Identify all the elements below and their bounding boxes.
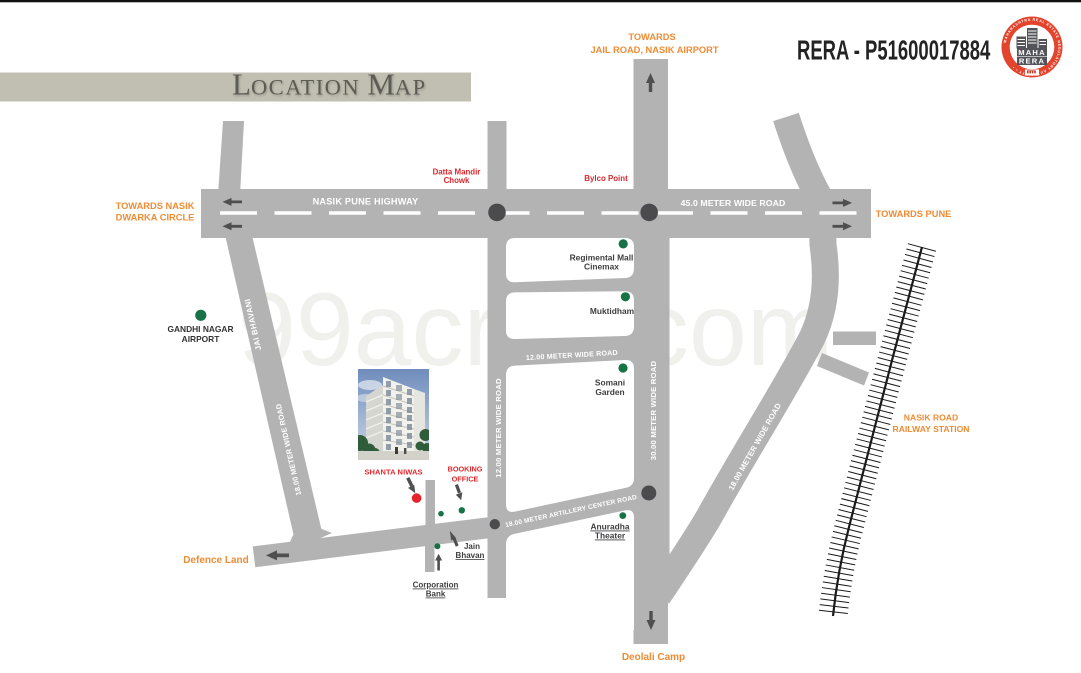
svg-text:JAIL ROAD, NASIK AIRPORT: JAIL ROAD, NASIK AIRPORT	[590, 45, 718, 55]
svg-text:RAILWAY STATION: RAILWAY STATION	[892, 424, 969, 434]
svg-text:MAHA: MAHA	[1018, 48, 1046, 57]
svg-text:AIRPORT: AIRPORT	[182, 334, 221, 344]
svg-text:Chowk: Chowk	[444, 176, 470, 185]
svg-text:SHANTA NIWAS: SHANTA NIWAS	[364, 468, 422, 477]
svg-text:Muktidham: Muktidham	[590, 306, 634, 316]
svg-text:Garden: Garden	[595, 387, 624, 397]
svg-text:RERA - P51600017884: RERA - P51600017884	[797, 35, 990, 66]
svg-text:Bank: Bank	[426, 590, 446, 599]
svg-text:RERA: RERA	[1019, 57, 1045, 66]
svg-text:NASIK ROAD: NASIK ROAD	[904, 413, 958, 423]
svg-text:TOWARDS PUNE: TOWARDS PUNE	[876, 209, 952, 219]
svg-text:Jain: Jain	[464, 542, 480, 551]
svg-text:Somani: Somani	[595, 378, 625, 388]
svg-text:Cinemax: Cinemax	[584, 262, 619, 272]
svg-text:12.00 METER WIDE ROAD: 12.00 METER WIDE ROAD	[494, 378, 503, 478]
svg-text:Defence Land: Defence Land	[183, 555, 249, 566]
svg-text:TOWARDS NASIK: TOWARDS NASIK	[116, 201, 195, 211]
svg-text:Corporation: Corporation	[413, 581, 459, 590]
svg-text:Bhavan: Bhavan	[456, 551, 485, 560]
svg-text:45.0 METER WIDE ROAD: 45.0 METER WIDE ROAD	[681, 198, 786, 208]
svg-text:30.00 METER WIDE ROAD: 30.00 METER WIDE ROAD	[649, 361, 658, 461]
svg-text:GANDHI NAGAR: GANDHI NAGAR	[167, 324, 233, 334]
svg-text:BOOKING: BOOKING	[448, 465, 483, 474]
svg-text:Deolali Camp: Deolali Camp	[622, 652, 685, 663]
svg-text:TOWARDS: TOWARDS	[628, 32, 675, 42]
svg-text:OFFICE: OFFICE	[452, 475, 479, 484]
svg-text:DWARKA CIRCLE: DWARKA CIRCLE	[116, 213, 195, 223]
svg-text:Theater: Theater	[595, 531, 626, 541]
svg-text:NASIK PUNE HIGHWAY: NASIK PUNE HIGHWAY	[313, 197, 419, 207]
svg-text:Bylco Point: Bylco Point	[584, 174, 628, 183]
